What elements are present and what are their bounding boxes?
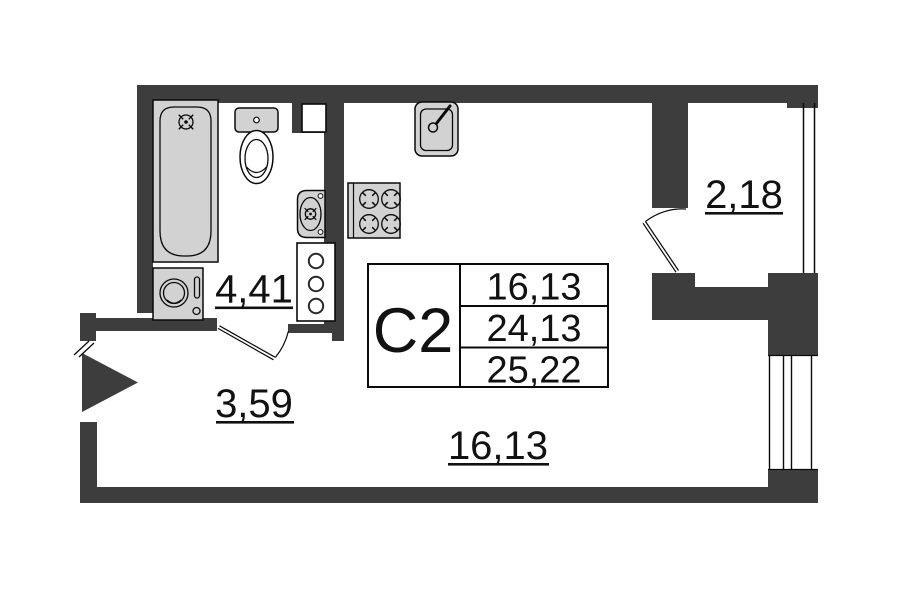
table-value-living-area: 16,13	[486, 267, 581, 309]
table-value-total-with-balcony: 25,22	[486, 350, 581, 392]
bathroom-area-label: 4,41	[215, 268, 293, 312]
entrance-arrow-icon	[82, 353, 138, 412]
floor-plan-drawing: С2 16,13 24,13 25,22 4,41 3,59 16,13 2,1…	[0, 0, 900, 600]
wall-top-right-step	[787, 103, 818, 108]
toilet-icon	[235, 108, 278, 184]
hallway-area-label: 3,59	[215, 382, 293, 426]
wall-balcony-bottom-bar	[695, 287, 768, 320]
hallway-area-underline	[216, 421, 294, 424]
bathroom-area-underline	[215, 307, 293, 310]
wall-bottom-right-block	[768, 470, 818, 503]
balcony-area-label: 2,18	[705, 173, 783, 217]
balcony-door-icon	[643, 209, 686, 272]
riser-shaft	[297, 243, 335, 321]
wall-bottom	[80, 487, 768, 503]
area-table: С2 16,13 24,13 25,22	[368, 264, 608, 392]
bathroom-door-icon	[218, 326, 289, 360]
wall-balcony-partition	[652, 103, 688, 208]
balcony-area-underline	[705, 212, 783, 215]
washbasin-icon	[298, 191, 326, 238]
wall-top	[137, 85, 818, 103]
bathtub-icon	[153, 100, 218, 262]
wall-left-lower	[80, 422, 97, 503]
floor-plan-canvas: С2 16,13 24,13 25,22 4,41 3,59 16,13 2,1…	[0, 0, 900, 600]
vent-shaft	[302, 104, 326, 132]
wall-right-mid-block	[768, 273, 818, 355]
stove-icon	[348, 183, 400, 238]
wall-bathroom-left	[137, 103, 153, 313]
table-value-total-area: 24,13	[486, 308, 581, 350]
washing-machine-icon	[153, 268, 203, 320]
kitchen-sink-icon	[415, 102, 458, 156]
wall-balcony-bottom-left-block	[652, 273, 695, 320]
window-icon	[768, 356, 818, 470]
living-area-underline	[448, 463, 549, 466]
unit-type-code: С2	[373, 296, 454, 366]
living-area-label: 16,13	[448, 424, 548, 468]
balcony-glazing-icon	[804, 103, 815, 273]
